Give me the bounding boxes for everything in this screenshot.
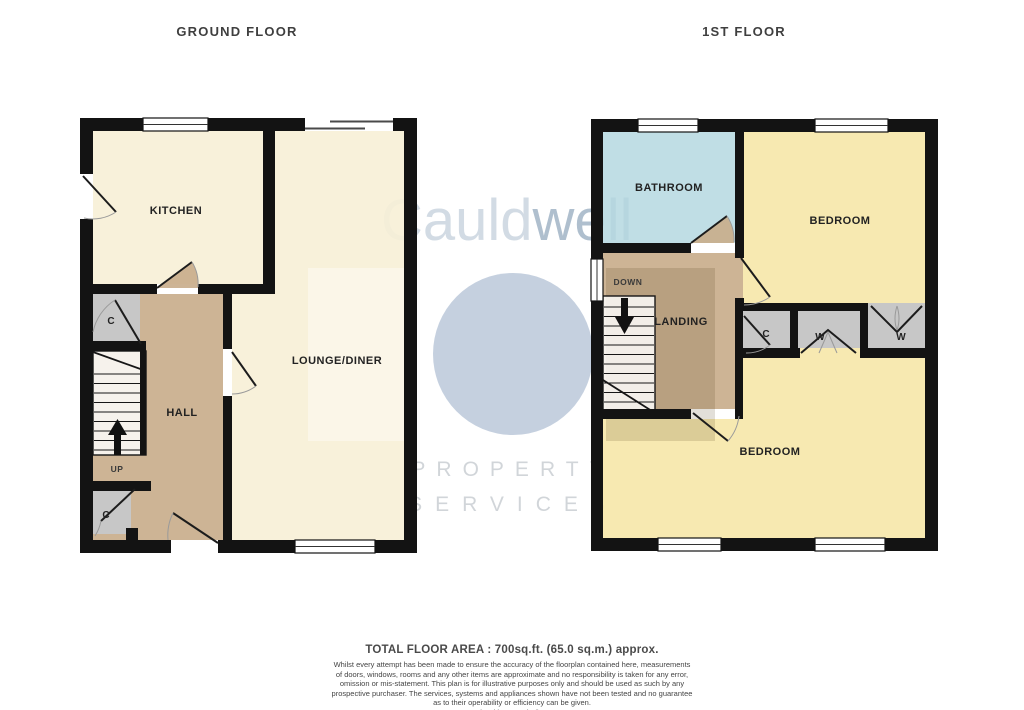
down-label: DOWN [614,277,643,287]
wall-segment [790,311,798,348]
up-arrow-shaft [114,434,121,455]
wall-segment [735,311,743,419]
wall-segment [860,303,868,348]
ground-floor-title: GROUND FLOOR [176,24,297,39]
down-arrow-shaft [621,298,628,318]
wall-segment [740,303,868,311]
ground-floor-plan: KITCHEN LOUNGE/DINER HALL C C UP [80,118,417,553]
wall-segment [925,119,938,551]
wall-segment [223,396,232,540]
disclaimer-line: prospective purchaser. The services, sys… [0,689,1024,699]
wall-segment [591,119,603,551]
wall-segment [591,538,938,551]
wardrobe-left-room [798,311,860,348]
closet-top-label: C [107,316,114,327]
ground-stairs [93,351,146,455]
first-stairs [603,296,655,413]
disclaimer-line: as to their operability or efficiency ca… [0,698,1024,708]
bathroom-label: BATHROOM [635,182,703,194]
floorplan-page: Cauldwell PROPERTY SERVICES [0,0,1024,710]
wall-segment [223,294,232,349]
landing-label: LANDING [654,316,708,328]
disclaimer-line: omission or mis-statement. This plan is … [0,679,1024,689]
wardrobe-left-label: W [815,332,825,343]
wall-segment [91,341,146,351]
bedroom-front-label: BEDROOM [810,215,871,227]
wall-segment [735,348,800,358]
wall-segment [404,118,417,553]
disclaimer-line: Whilst every attempt has been made to en… [0,660,1024,670]
wall-segment [735,131,744,258]
footer: TOTAL FLOOR AREA : 700sq.ft. (65.0 sq.m.… [0,644,1024,710]
wardrobe-right-label: W [896,332,906,343]
wall-segment [591,243,691,253]
wall-segment [140,351,146,455]
disclaimer-line: of doors, windows, rooms and any other i… [0,670,1024,680]
closet-bottom-label: C [102,510,109,521]
kitchen-label: KITCHEN [150,205,202,217]
bedroom-back-label: BEDROOM [740,446,801,458]
hall-label: HALL [166,407,197,419]
first-closet-label: C [762,329,769,340]
wall-segment [591,409,691,419]
total-floor-area: TOTAL FLOOR AREA : 700sq.ft. (65.0 sq.m.… [0,644,1024,656]
floorplans-svg: KITCHEN LOUNGE/DINER HALL C C UP [0,0,1024,710]
wall-segment [126,528,138,540]
first-floor-plan: BATHROOM BEDROOM LANDING BEDROOM DOWN C … [591,119,938,551]
first-floor-title: 1ST FLOOR [702,24,786,39]
lounge-diner-label: LOUNGE/DINER [292,355,382,367]
wall-segment [198,284,275,294]
wall-segment [91,481,151,491]
front-door-opening [171,540,218,553]
up-label: UP [111,464,124,474]
wall-segment [263,131,275,294]
wall-segment [860,348,925,358]
wall-segment [93,284,157,294]
disclaimer: Whilst every attempt has been made to en… [0,660,1024,710]
